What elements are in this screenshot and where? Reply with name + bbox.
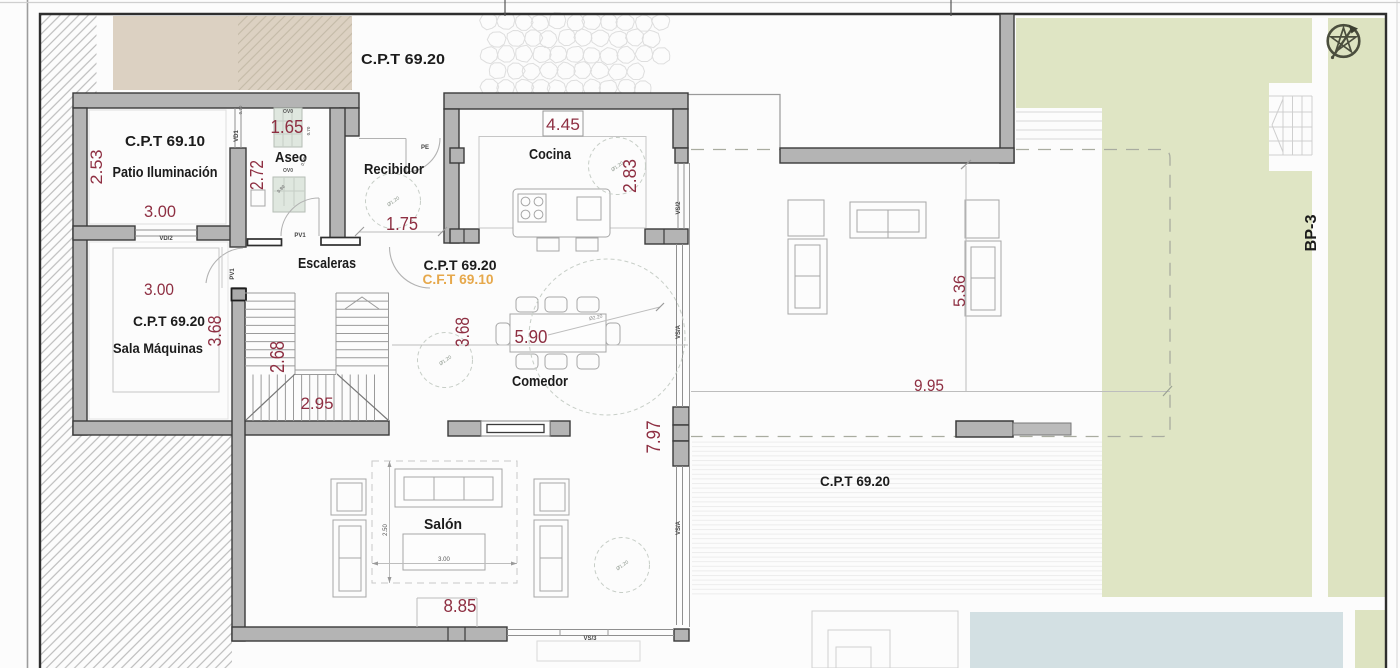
- svg-text:2.72: 2.72: [247, 160, 267, 190]
- svg-text:1.65: 1.65: [271, 117, 304, 137]
- svg-text:VS/A: VS/A: [676, 520, 682, 535]
- svg-text:3.00: 3.00: [144, 280, 174, 299]
- svg-text:VS/A: VS/A: [676, 324, 682, 339]
- svg-text:Escaleras: Escaleras: [298, 255, 356, 272]
- svg-text:VD1: VD1: [234, 130, 240, 142]
- svg-text:VS/3: VS/3: [583, 636, 597, 642]
- svg-text:3.68: 3.68: [205, 316, 225, 347]
- svg-text:4.45: 4.45: [546, 115, 580, 134]
- svg-text:3.00: 3.00: [144, 202, 176, 221]
- svg-text:2.95: 2.95: [301, 394, 334, 413]
- svg-text:PV1: PV1: [294, 233, 306, 239]
- svg-text:1.75: 1.75: [386, 214, 418, 234]
- svg-text:C.F.T 69.10: C.F.T 69.10: [423, 271, 494, 287]
- svg-text:2.68: 2.68: [267, 341, 289, 373]
- svg-text:VS/2: VS/2: [676, 201, 682, 215]
- svg-text:C.P.T 69.20: C.P.T 69.20: [133, 313, 205, 329]
- svg-text:Salón: Salón: [424, 516, 462, 533]
- svg-text:Sala Máquinas: Sala Máquinas: [113, 340, 203, 356]
- svg-text:5.36: 5.36: [950, 275, 969, 307]
- svg-text:Recibidor: Recibidor: [364, 161, 424, 178]
- svg-text:2.50: 2.50: [383, 524, 389, 536]
- svg-text:Cocina: Cocina: [529, 146, 572, 163]
- svg-text:PE: PE: [421, 145, 429, 151]
- svg-text:5.90: 5.90: [515, 327, 548, 347]
- svg-text:8.85: 8.85: [444, 596, 477, 616]
- svg-text:0.70: 0.70: [238, 105, 243, 114]
- svg-text:3.00: 3.00: [438, 557, 450, 563]
- svg-text:0.70: 0.70: [306, 126, 311, 135]
- svg-text:C.P.T 69.10: C.P.T 69.10: [125, 133, 205, 150]
- svg-text:2.53: 2.53: [87, 150, 106, 185]
- svg-text:9.95: 9.95: [914, 376, 944, 395]
- svg-text:2.83: 2.83: [620, 159, 640, 193]
- svg-text:3.68: 3.68: [453, 317, 474, 347]
- svg-text:Patio Iluminación: Patio Iluminación: [113, 164, 218, 181]
- svg-text:PV1: PV1: [230, 268, 236, 280]
- svg-text:C.P.T 69.20: C.P.T 69.20: [820, 473, 890, 489]
- svg-text:BP-3: BP-3: [1303, 214, 1320, 251]
- svg-text:VD/2: VD/2: [159, 236, 173, 242]
- svg-text:OV0: OV0: [283, 168, 293, 174]
- svg-text:C.P.T 69.20: C.P.T 69.20: [361, 51, 445, 68]
- svg-text:OV0: OV0: [283, 109, 293, 115]
- svg-text:Comedor: Comedor: [512, 373, 568, 390]
- svg-text:7.97: 7.97: [644, 421, 665, 454]
